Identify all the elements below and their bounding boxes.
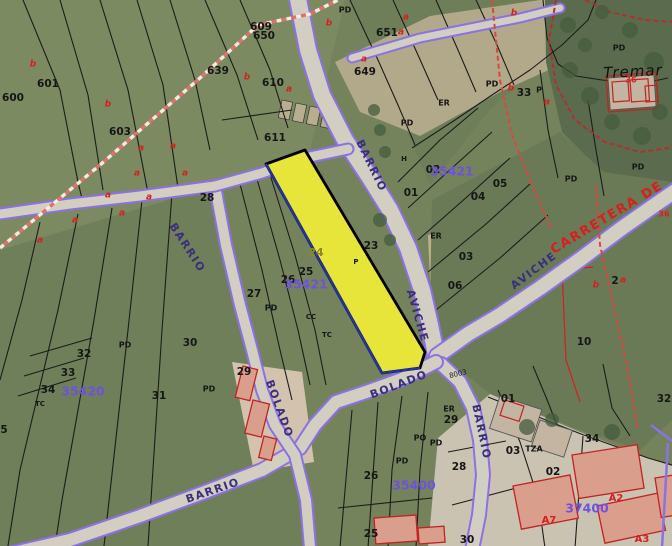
subparcel-letter-label: a	[105, 191, 111, 201]
parcel-label: 06	[448, 280, 463, 292]
building-label: A7	[542, 515, 557, 526]
parcel-label: 01	[501, 393, 516, 405]
parcel-label: 01	[404, 187, 419, 199]
parcel-label: PD	[565, 175, 578, 184]
building-label: A2	[609, 493, 624, 504]
parcel-label: PD	[203, 385, 216, 394]
building-label: A3	[635, 534, 650, 545]
parcel-label: 33	[61, 367, 76, 379]
parcel-label: 610	[262, 77, 284, 89]
subparcel-letter-label: a	[398, 28, 404, 38]
tree	[652, 104, 668, 120]
tree	[604, 424, 620, 440]
tree	[578, 38, 592, 52]
parcel-label: 33	[517, 87, 532, 99]
parcel-label: 651	[376, 27, 398, 39]
zone-number-label: 35421	[284, 277, 328, 292]
subparcel-letter-label: a	[286, 85, 292, 95]
parcel-label: 28	[200, 192, 215, 204]
zone-number-label: 35420	[61, 384, 105, 399]
tree	[379, 146, 391, 158]
subparcel-letter-label: b	[508, 84, 515, 94]
cadastral-map-viewport[interactable]: 600601603609639650610611649651PDPDERH010…	[0, 0, 672, 546]
building	[374, 515, 418, 544]
tree	[384, 234, 396, 246]
parcel-label: 5	[0, 424, 7, 436]
subparcel-letter-label: a	[134, 169, 140, 179]
parcel-label: ER	[430, 232, 442, 241]
subparcel-letter-label: a	[182, 169, 188, 179]
subparcel-letter-label: a	[544, 98, 550, 108]
parcel-label: 32	[657, 393, 672, 405]
parcel-label: PD	[401, 119, 414, 128]
tree	[633, 127, 651, 145]
parcel-label: 31	[152, 390, 167, 402]
parcel-label: P	[353, 258, 358, 266]
parcel-label: 26	[364, 470, 379, 482]
parcel-label: PO	[414, 434, 427, 443]
parcel-label: 639	[207, 65, 229, 77]
parcel-label: TC	[35, 400, 45, 408]
parcel-label: 601	[37, 78, 59, 90]
subparcel-letter-label: a	[146, 193, 152, 203]
tree	[562, 62, 578, 78]
parcel-label: PD	[339, 6, 352, 15]
parcel-label: P	[536, 86, 542, 95]
parcel-label: 2	[611, 275, 618, 287]
parcel-label: PD	[430, 439, 443, 448]
parcel-label: 25	[364, 528, 379, 540]
parcel-label: 05	[493, 178, 508, 190]
parcel-label: PD	[486, 80, 499, 89]
parcel-label: CC	[306, 313, 316, 321]
parcel-label: 32	[77, 348, 92, 360]
parcel-label: 04	[471, 191, 486, 203]
parcel-label: ER	[443, 405, 455, 414]
tree	[595, 5, 609, 19]
subparcel-letter-label: b	[511, 9, 518, 19]
tree	[545, 413, 559, 427]
subparcel-letter-label: b	[105, 100, 112, 110]
zone-number-label: 35400	[392, 478, 436, 493]
parcel-label: 34	[585, 433, 600, 445]
tree	[374, 124, 386, 136]
parcel-label: PD	[396, 457, 409, 466]
parcel-label: 30	[183, 337, 198, 349]
highlighted-parcel-number: 24	[308, 246, 324, 259]
subparcel-letter-label: a	[72, 216, 78, 226]
subparcel-letter-label: b	[326, 19, 333, 29]
subparcel-letter-label: a	[37, 236, 43, 246]
subparcel-letter-label: a	[361, 55, 367, 65]
tree	[622, 22, 638, 38]
building	[418, 526, 445, 544]
subparcel-letter-label: a	[170, 142, 176, 152]
tree	[604, 114, 620, 130]
parcel-label: 611	[264, 132, 286, 144]
parcel-label: 30	[460, 534, 475, 546]
parcel-label: PD	[632, 163, 645, 172]
tree	[368, 104, 380, 116]
tree	[519, 419, 535, 435]
parcel-label: PD	[265, 304, 278, 313]
parcel-label: 10	[577, 336, 592, 348]
parcel-label: TZA	[525, 445, 543, 454]
tree	[373, 213, 387, 227]
parcel-label: 29	[444, 414, 459, 426]
subparcel-letter-label: b	[244, 73, 251, 83]
subparcel-letter-label: a	[119, 209, 125, 219]
subparcel-letter-label: a	[620, 276, 626, 286]
parcel-label: 28	[452, 461, 467, 473]
parcel-label: PD	[119, 341, 132, 350]
parcel-label: 603	[109, 126, 131, 138]
parcel-label: H	[401, 155, 407, 163]
subparcel-letter-label: a	[138, 144, 144, 154]
subparcel-letter-label: a	[403, 13, 409, 23]
map-canvas[interactable]: 600601603609639650610611649651PDPDERH010…	[0, 0, 672, 546]
parcel-label: 600	[2, 92, 24, 104]
tree	[581, 87, 599, 105]
tree	[560, 17, 576, 33]
parcel-label: 34	[41, 384, 56, 396]
parcel-label: 650	[253, 30, 275, 42]
parcel-label: 02	[546, 466, 561, 478]
parcel-label: TC	[322, 331, 332, 339]
parcel-label: 27	[247, 288, 262, 300]
parcel-label: PD	[613, 44, 626, 53]
zone-number-label: 37400	[565, 501, 609, 516]
place-name-label: Tremar	[603, 61, 663, 82]
parcel-label: 29	[237, 366, 252, 378]
building-label: 36	[658, 210, 670, 219]
subparcel-letter-label: b	[30, 60, 37, 70]
subparcel-letter-label: b	[593, 281, 600, 291]
zone-number-label: 35421	[430, 164, 474, 179]
parcel-label: ER	[438, 99, 450, 108]
parcel-label: 03	[459, 251, 474, 263]
parcel-label: 23	[364, 240, 379, 252]
building	[572, 445, 644, 499]
parcel-label: 649	[354, 66, 376, 78]
parcel-label: 03	[506, 445, 521, 457]
